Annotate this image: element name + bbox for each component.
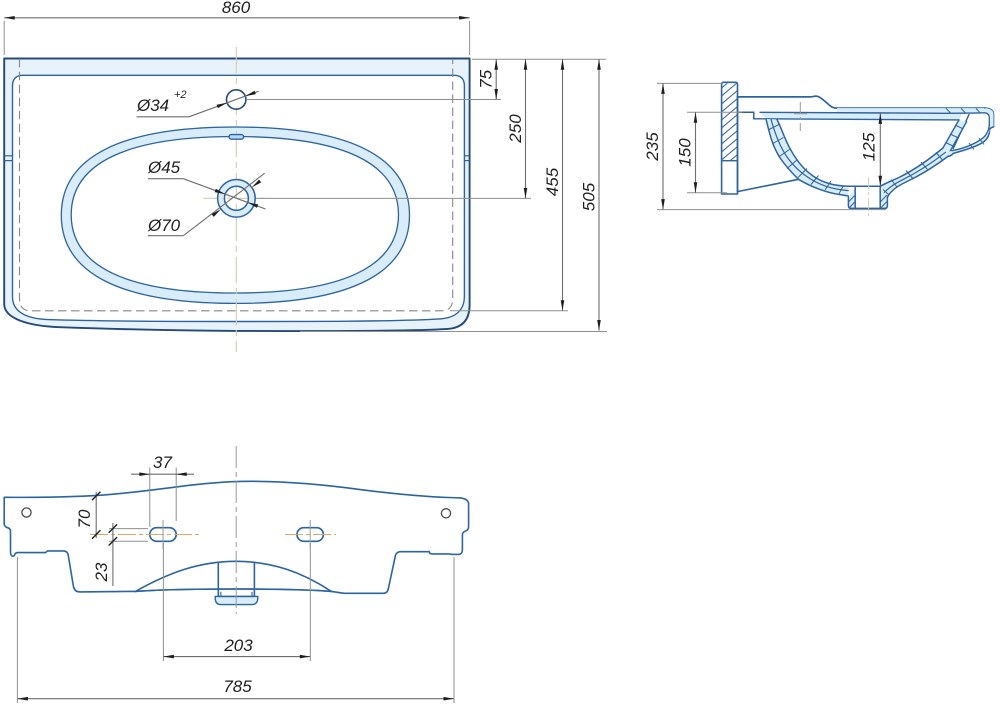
svg-text:455: 455 (543, 167, 562, 196)
svg-text:203: 203 (223, 636, 253, 655)
svg-text:235: 235 (643, 132, 662, 162)
svg-text:75: 75 (477, 69, 496, 88)
svg-text:860: 860 (222, 0, 251, 17)
svg-text:505: 505 (580, 182, 599, 211)
svg-text:125: 125 (860, 132, 879, 161)
svg-text:23: 23 (92, 562, 111, 582)
svg-text:785: 785 (223, 677, 252, 696)
svg-text:+2: +2 (174, 89, 187, 101)
svg-text:Ø45: Ø45 (147, 158, 181, 177)
svg-text:37: 37 (153, 453, 172, 472)
svg-text:250: 250 (506, 114, 525, 144)
svg-text:150: 150 (676, 138, 695, 167)
svg-text:Ø34: Ø34 (136, 96, 169, 115)
svg-text:70: 70 (75, 509, 94, 528)
svg-text:Ø70: Ø70 (147, 216, 181, 235)
